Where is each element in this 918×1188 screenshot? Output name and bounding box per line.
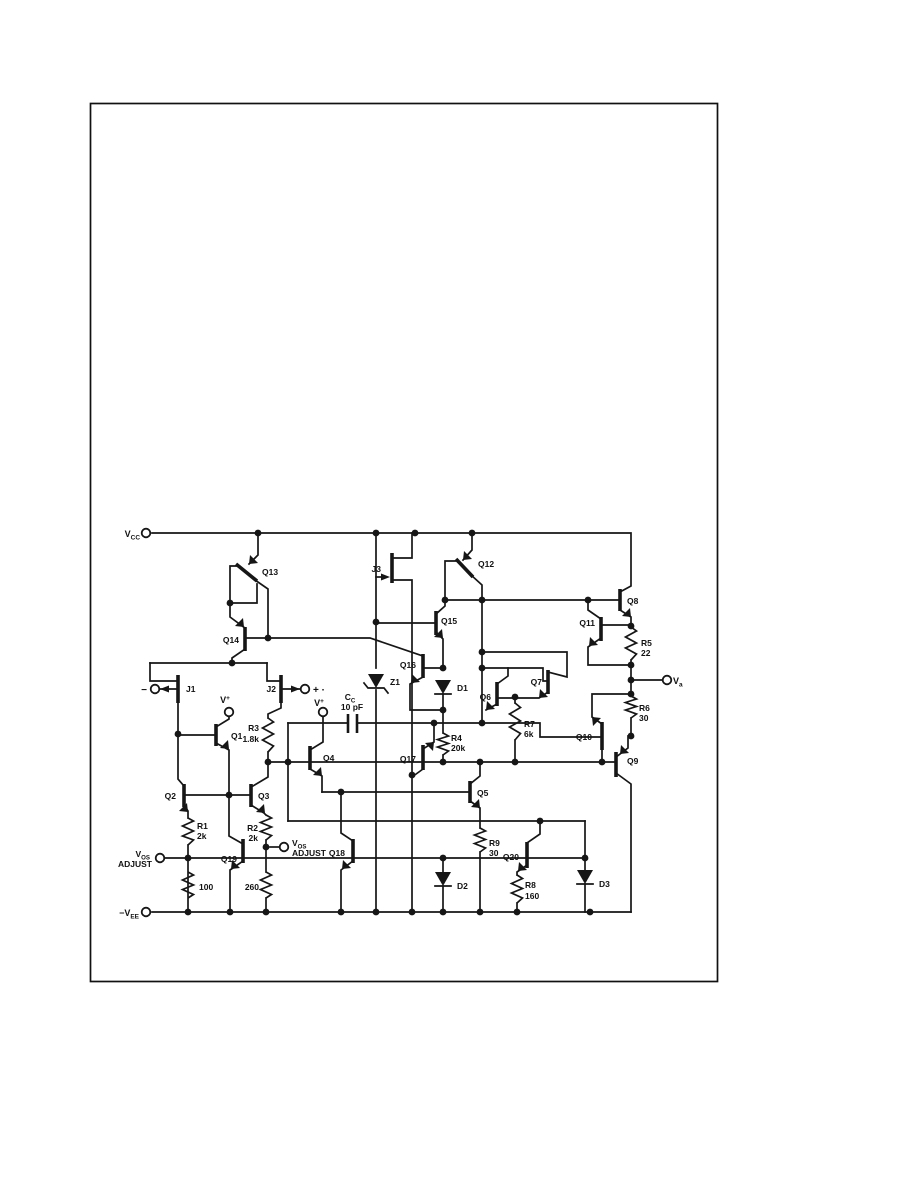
- vos-adjust-terminal-left: [156, 854, 165, 863]
- noninverting-input-terminal: [301, 685, 310, 694]
- vcc-terminal: [142, 529, 151, 538]
- vplus-terminal-1: [225, 708, 234, 717]
- diodes: [364, 674, 593, 886]
- label-q3: Q3: [258, 791, 270, 801]
- label-q14: Q14: [223, 635, 239, 645]
- component-labels: VCCQ13J3Q12Q8Q14Q15Q11R522Q16Z1D1Q6Q7Va−…: [118, 529, 683, 921]
- label-minus: −: [141, 685, 147, 696]
- label-r1: R1: [197, 821, 208, 831]
- label-j3: J3: [372, 564, 382, 574]
- label-r8: R8: [525, 880, 536, 890]
- label-r4v: 20k: [451, 743, 465, 753]
- label-q2: Q2: [165, 791, 177, 801]
- label-r6v: 30: [639, 713, 649, 723]
- label-q9: Q9: [627, 756, 639, 766]
- label-z1: Z1: [390, 677, 400, 687]
- label-r4: R4: [451, 733, 462, 743]
- lower-stage-wires: [288, 762, 585, 912]
- label-r2v: 2k: [249, 833, 259, 843]
- label-h2: 260: [245, 882, 259, 892]
- label-vo: Va: [673, 676, 683, 689]
- compensation-capacitor: [348, 714, 357, 733]
- label-q1: Q1: [231, 731, 243, 741]
- vee-terminal: [142, 908, 151, 917]
- label-j2: J2: [267, 684, 277, 694]
- label-r9v: 30: [489, 848, 499, 858]
- label-d3: D3: [599, 879, 610, 889]
- label-q15: Q15: [441, 616, 457, 626]
- label-ccv: 10 pF: [341, 702, 363, 712]
- label-vp1: V+: [220, 695, 230, 705]
- label-vosl2: ADJUST: [118, 859, 153, 869]
- scanned-page: VCCQ13J3Q12Q8Q14Q15Q11R522Q16Z1D1Q6Q7Va−…: [0, 0, 918, 1188]
- label-q10: Q10: [576, 732, 592, 742]
- label-r5v: 22: [641, 648, 651, 658]
- label-d1: D1: [457, 683, 468, 693]
- label-q13: Q13: [262, 567, 278, 577]
- vos-adjust-terminal-right: [280, 843, 289, 852]
- label-q18: Q18: [329, 848, 345, 858]
- label-r3: R3: [248, 723, 259, 733]
- label-r6: R6: [639, 703, 650, 713]
- label-q6: Q6: [480, 692, 492, 702]
- label-r8v: 160: [525, 891, 539, 901]
- bias-column-wires: [150, 533, 423, 681]
- output-terminal: [663, 676, 672, 685]
- label-q8: Q8: [627, 596, 639, 606]
- label-q20: Q20: [503, 852, 519, 862]
- label-vp2: V+: [314, 698, 324, 708]
- vplus-terminal-2: [319, 708, 328, 717]
- label-r2: R2: [247, 823, 258, 833]
- label-q4: Q4: [323, 753, 335, 763]
- label-r3v: 1.8k: [242, 734, 259, 744]
- label-r7: R7: [524, 719, 535, 729]
- schematic-canvas: VCCQ13J3Q12Q8Q14Q15Q11R522Q16Z1D1Q6Q7Va−…: [0, 0, 918, 1188]
- label-q16: Q16: [400, 660, 416, 670]
- label-r7v: 6k: [524, 729, 534, 739]
- label-vee: −VEE: [119, 908, 140, 921]
- figure-border: [91, 104, 718, 982]
- label-r9: R9: [489, 838, 500, 848]
- label-plus: + ·: [313, 685, 325, 696]
- inverting-input-terminal: [151, 685, 160, 694]
- label-j1: J1: [186, 684, 196, 694]
- label-h1: 100: [199, 882, 213, 892]
- label-d2: D2: [457, 881, 468, 891]
- label-q11: Q11: [579, 618, 595, 628]
- label-q5: Q5: [477, 788, 489, 798]
- label-r1v: 2k: [197, 831, 207, 841]
- label-vcc: VCC: [125, 529, 141, 542]
- label-q19: Q19: [221, 854, 237, 864]
- label-q17: Q17: [400, 754, 416, 764]
- label-q7: Q7: [531, 677, 543, 687]
- label-q12: Q12: [478, 559, 494, 569]
- label-vosr2: ADJUST: [292, 848, 327, 858]
- label-r5: R5: [641, 638, 652, 648]
